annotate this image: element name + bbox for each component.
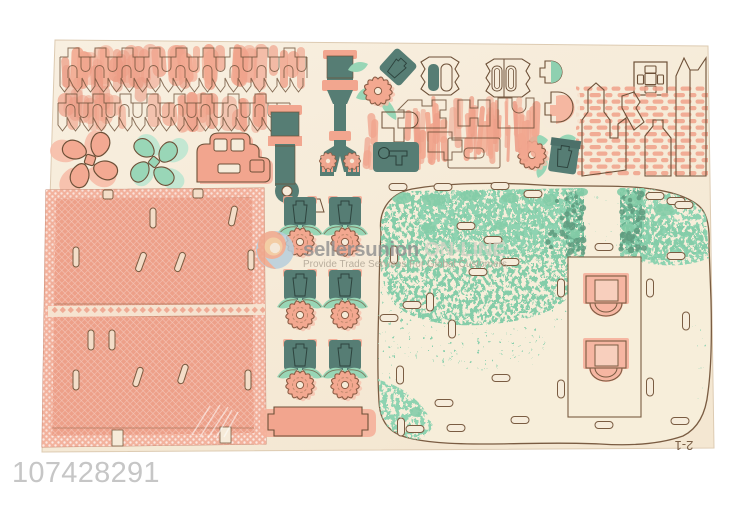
svg-text:2-1: 2-1 [675, 438, 694, 453]
svg-text:Provide Trade Services For Glo: Provide Trade Services For Global Custom… [303, 259, 507, 270]
svg-text:107428291: 107428291 [12, 457, 160, 489]
svg-text:ON-LINE: ON-LINE [424, 238, 505, 261]
svg-text:sellersunion: sellersunion [303, 238, 419, 261]
